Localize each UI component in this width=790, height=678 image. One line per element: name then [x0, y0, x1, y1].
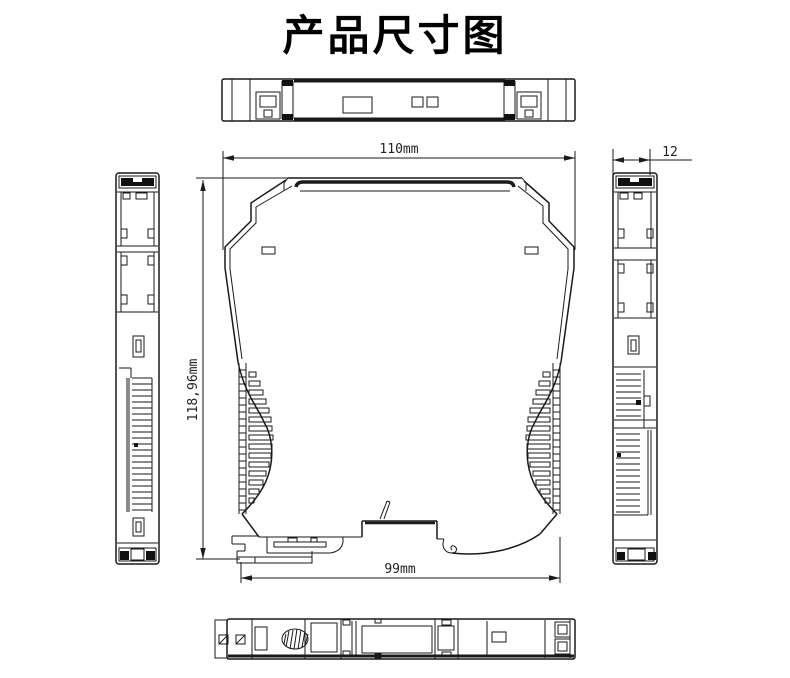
dim-front-height: 118,96mm	[186, 178, 290, 559]
dim-base-width-label: 99mm	[384, 562, 415, 577]
dim-base-width: 99mm	[241, 537, 560, 583]
dim-front-width-label: 110mm	[379, 142, 418, 157]
bottom-view	[215, 619, 575, 659]
left-side-view	[116, 173, 159, 564]
dim-side-width-label: 12	[662, 145, 678, 160]
front-view	[225, 178, 574, 563]
dim-side-width: 12	[613, 145, 692, 175]
product-dimension-drawing: 110mm 118,96mm 99mm	[0, 0, 790, 678]
dim-front-height-label: 118,96mm	[186, 359, 201, 422]
right-side-view	[613, 173, 657, 564]
top-view	[222, 79, 575, 121]
